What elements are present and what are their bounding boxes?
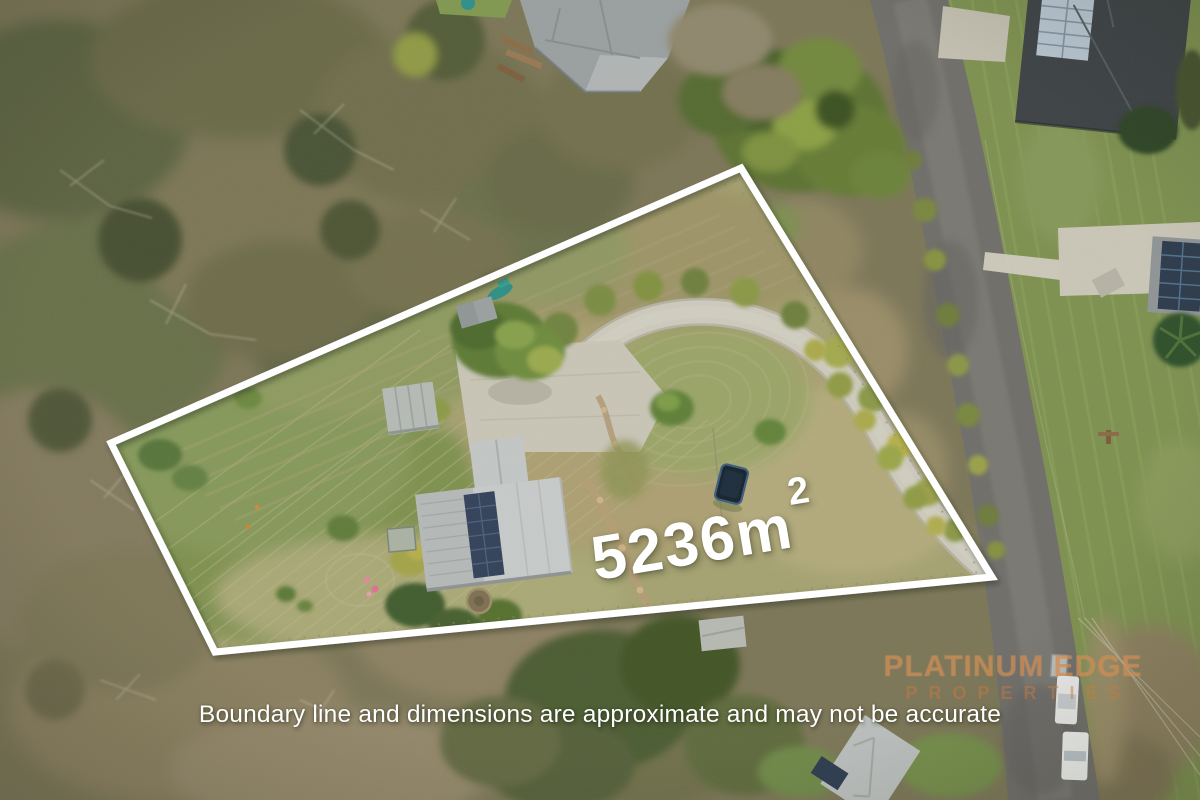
aerial-photo-scene [0, 0, 1200, 800]
disclaimer-text: Boundary line and dimensions are approxi… [0, 701, 1200, 729]
vignette [0, 0, 1200, 800]
aerial-photo-canvas: 5236m2 Boundary line and dimensions are … [0, 0, 1200, 800]
